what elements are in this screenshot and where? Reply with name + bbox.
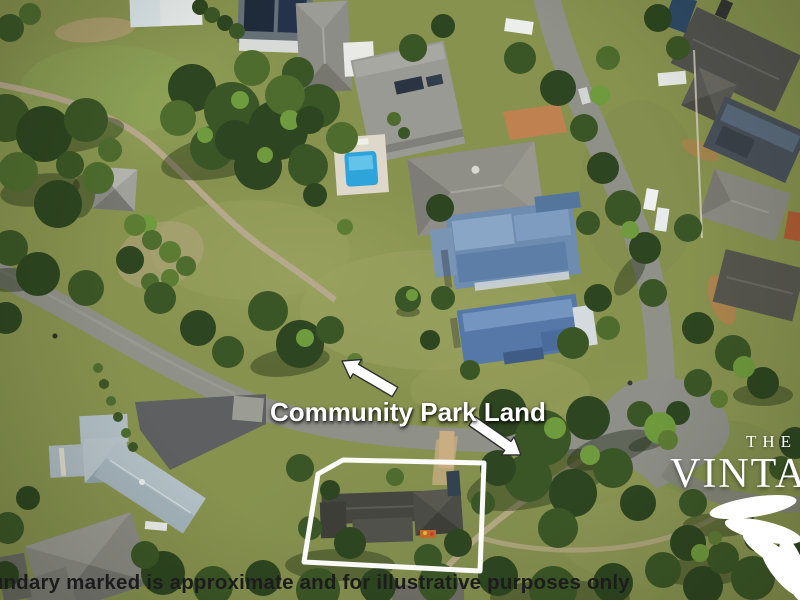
annotation-layer bbox=[0, 0, 800, 600]
disclaimer-text: Boundary marked is approximate and for i… bbox=[0, 571, 630, 595]
brand-logo-line1: THE bbox=[746, 432, 797, 452]
property-boundary-outline bbox=[304, 460, 484, 571]
aerial-photo: Community Park Land THE VINTAGE Boundary… bbox=[0, 0, 800, 600]
park-land-label: Community Park Land bbox=[270, 397, 546, 428]
arrow-up-left-icon bbox=[342, 360, 398, 397]
brand-logo-line2: VINTAGE bbox=[670, 450, 800, 498]
vine-fan-icon bbox=[708, 490, 800, 600]
